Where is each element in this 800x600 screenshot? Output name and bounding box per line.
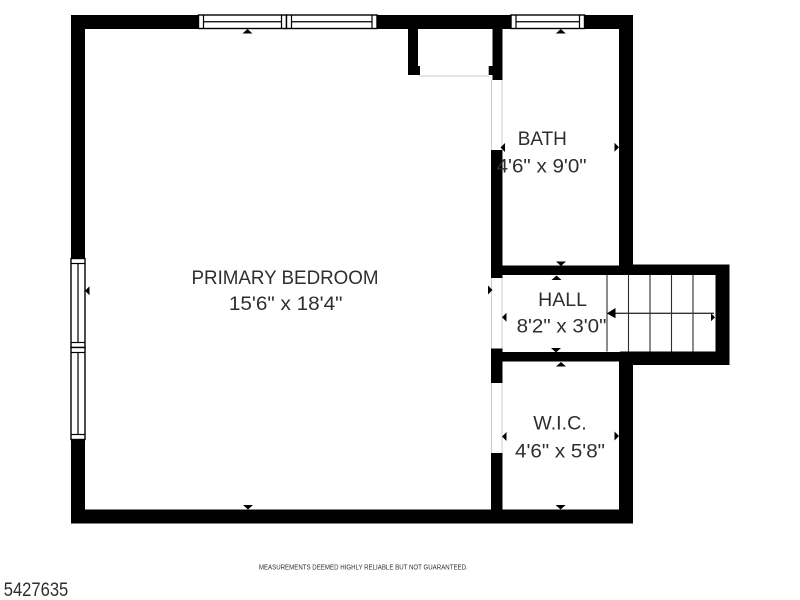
svg-text:BATH: BATH	[518, 129, 567, 150]
svg-text:PRIMARY BEDROOM: PRIMARY BEDROOM	[192, 268, 379, 289]
svg-text:HALL: HALL	[538, 290, 587, 311]
svg-text:W.I.C.: W.I.C.	[533, 413, 586, 434]
svg-text:MEASUREMENTS DEEMED HIGHLY REL: MEASUREMENTS DEEMED HIGHLY RELIABLE BUT …	[259, 564, 468, 571]
svg-text:4'6" x 9'0": 4'6" x 9'0"	[497, 157, 587, 178]
svg-text:15'6" x 18'4": 15'6" x 18'4"	[229, 294, 343, 315]
svg-text:4'6" x 5'8": 4'6" x 5'8"	[515, 442, 605, 463]
svg-text:8'2" x 3'0": 8'2" x 3'0"	[517, 317, 607, 338]
svg-text:5427635: 5427635	[4, 580, 69, 600]
